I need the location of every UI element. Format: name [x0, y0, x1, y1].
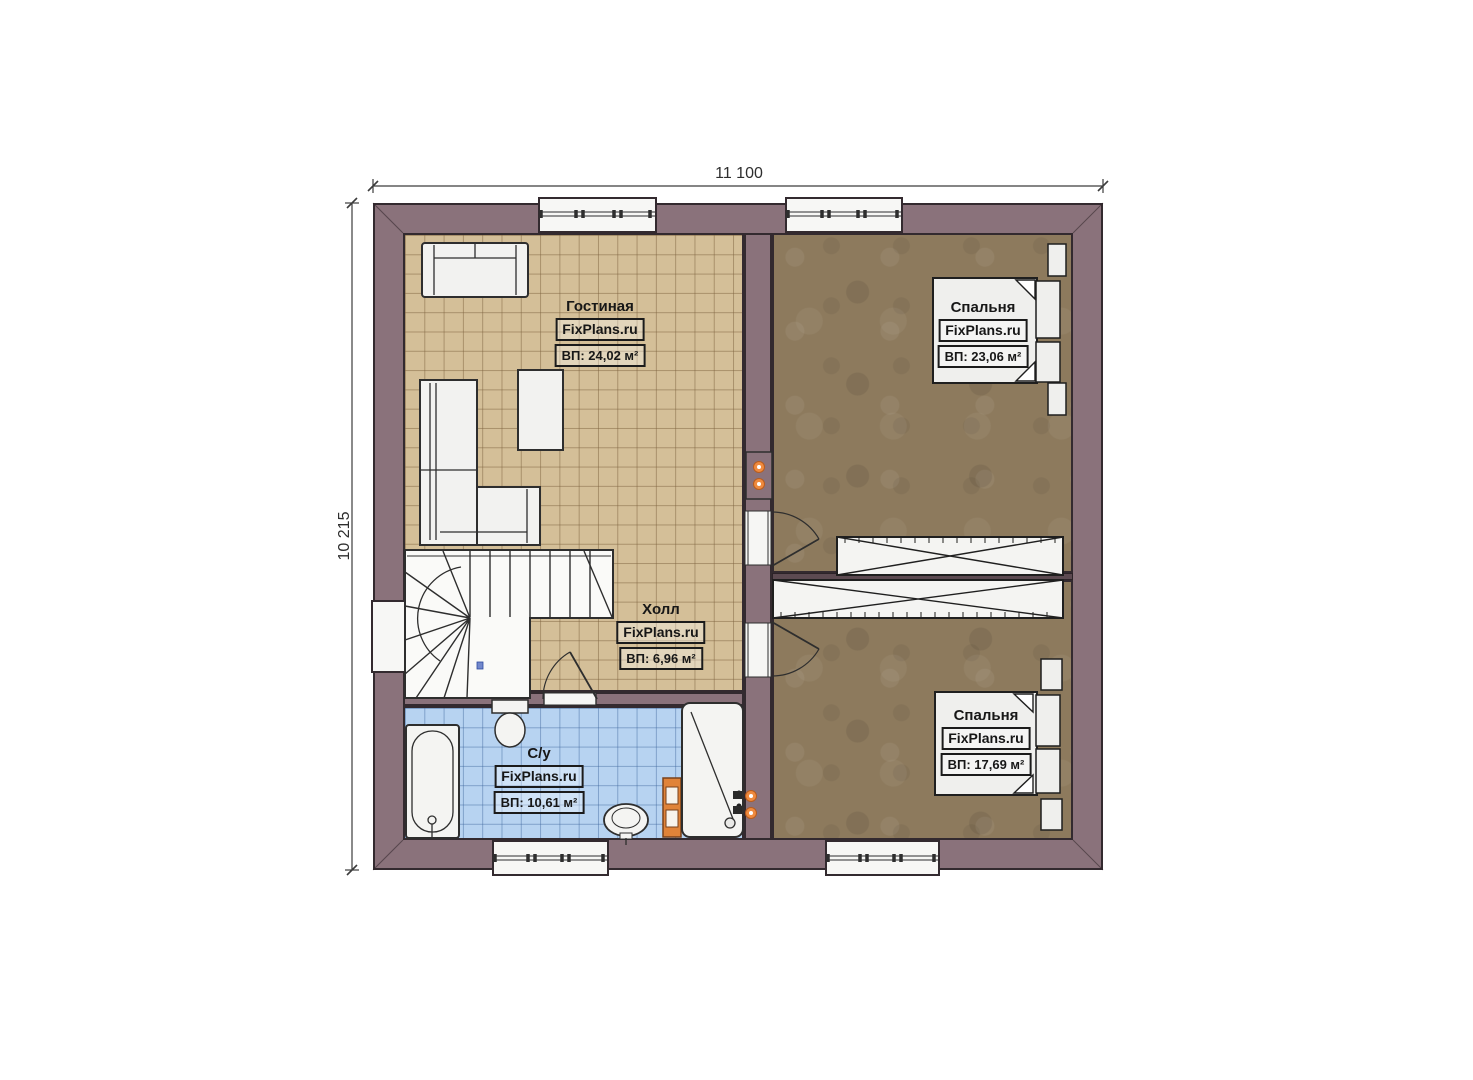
wardrobe-bottom	[773, 580, 1063, 618]
room-brand-bedroom-top: FixPlans.ru	[938, 319, 1027, 342]
room-label-bathroom: С/у FixPlans.ru ВП: 10,61 м²	[494, 746, 585, 814]
room-area-bedroom-bottom: ВП: 17,69 м²	[941, 753, 1032, 776]
room-area-hall: ВП: 6,96 м²	[619, 647, 703, 670]
door-bedroom-top	[745, 511, 819, 566]
room-label-hall: Холл FixPlans.ru ВП: 6,96 м²	[616, 602, 705, 670]
door-bedroom-bottom	[745, 622, 819, 677]
room-brand-bathroom: FixPlans.ru	[494, 765, 583, 788]
dimension-label-top: 11 100	[715, 165, 763, 183]
room-title-bedroom-top: Спальня	[951, 300, 1016, 316]
dimension-label-left: 10 215	[336, 512, 354, 561]
staircase	[405, 550, 613, 698]
bathtub	[406, 725, 459, 838]
floor-plan-canvas: Гостиная FixPlans.ru ВП: 24,02 м² Спальн…	[0, 0, 1473, 1080]
room-label-bedroom-bottom: Спальня FixPlans.ru ВП: 17,69 м²	[941, 708, 1032, 776]
sink	[604, 804, 648, 845]
coffee-table	[518, 370, 563, 450]
room-title-living: Гостиная	[566, 299, 634, 315]
room-area-living: ВП: 24,02 м²	[555, 344, 646, 367]
room-brand-living: FixPlans.ru	[555, 318, 644, 341]
shower-cabin	[682, 703, 743, 837]
room-brand-bedroom-bottom: FixPlans.ru	[941, 727, 1030, 750]
room-area-bathroom: ВП: 10,61 м²	[494, 791, 585, 814]
room-label-living: Гостиная FixPlans.ru ВП: 24,02 м²	[555, 299, 646, 367]
sofa-top	[422, 243, 528, 297]
wardrobe-top	[837, 537, 1063, 575]
door-bathroom	[543, 652, 597, 706]
hall-radiator	[746, 452, 772, 499]
toilet	[492, 700, 528, 747]
stair-marker	[477, 662, 483, 669]
room-title-bedroom-bottom: Спальня	[954, 708, 1019, 724]
room-label-bedroom-top: Спальня FixPlans.ru ВП: 23,06 м²	[938, 300, 1029, 368]
room-title-bathroom: С/у	[527, 746, 550, 762]
room-brand-hall: FixPlans.ru	[616, 621, 705, 644]
plan-linework	[0, 0, 1473, 1080]
room-area-bedroom-top: ВП: 23,06 м²	[938, 345, 1029, 368]
bathroom-cabinet	[663, 778, 681, 837]
room-title-hall: Холл	[642, 602, 680, 618]
